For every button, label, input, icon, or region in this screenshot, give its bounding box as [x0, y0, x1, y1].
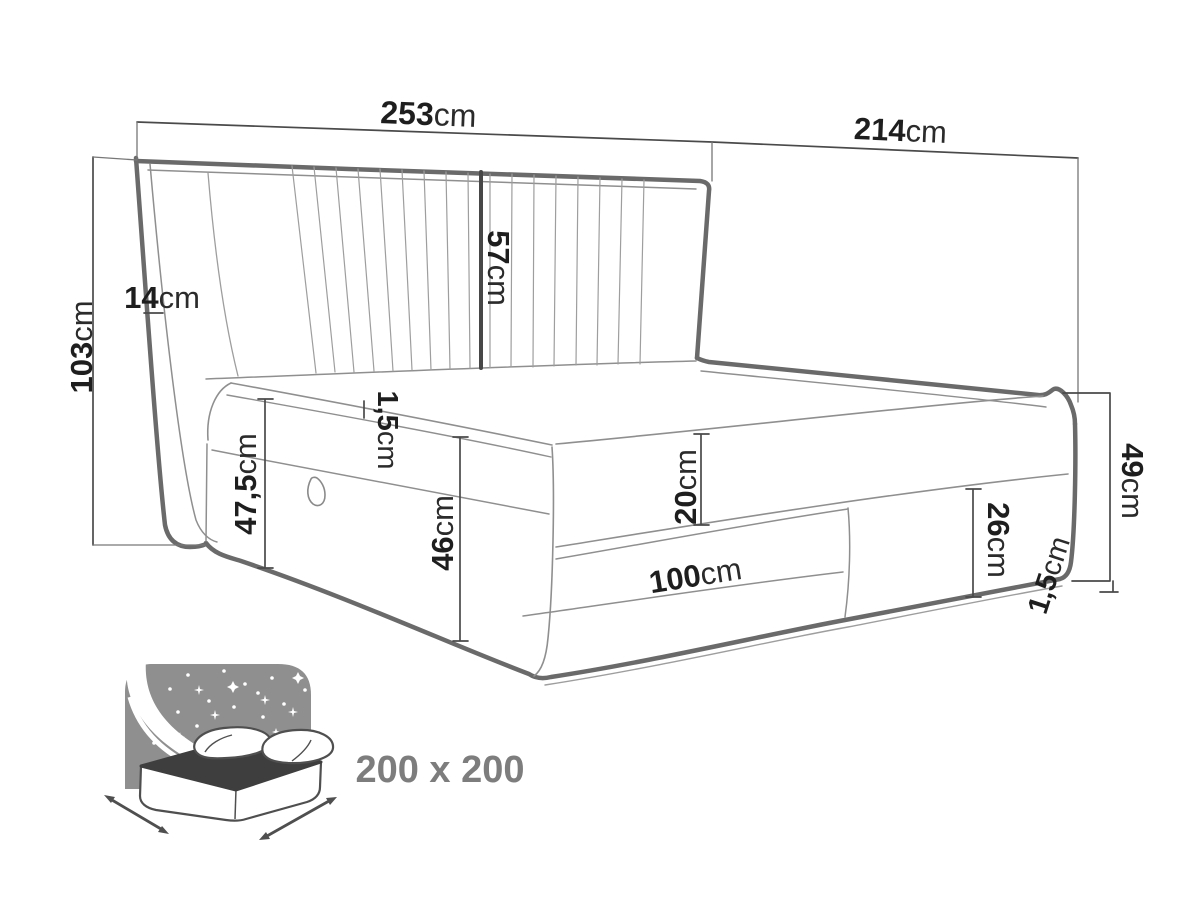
label-foot-panel-height: 26cm — [981, 502, 1016, 578]
label-foot-corner-height: 49cm — [1115, 443, 1150, 519]
mattress-front-right-edge — [556, 396, 1043, 444]
label-drawer-width: 100cm — [647, 551, 744, 600]
label-mattress-seam: 1,5cm — [371, 391, 403, 470]
headboard — [136, 158, 709, 547]
headboard-channel-lines — [292, 166, 644, 373]
base-bottom-right-outline — [206, 424, 1075, 678]
label-total-width: 253cm — [380, 94, 477, 134]
dim-ticks-base-trim — [1100, 581, 1118, 592]
base-bottom-piping — [545, 586, 1062, 685]
bed-size-icon: 200 x 200 — [104, 660, 525, 840]
headboard-wing-outer-edge — [136, 158, 206, 547]
base-front-corner-edge — [534, 447, 553, 676]
mattress — [208, 358, 1075, 547]
label-box-height: 46cm — [425, 495, 460, 571]
drawer-side-edge — [845, 508, 850, 617]
mattress-corner-arc — [208, 383, 231, 440]
headboard-panel-left-boundary — [208, 173, 238, 376]
bed-dimension-drawing: 253cm 214cm 103cm 14cm 57cm 1,5cm 47,5cm… — [0, 0, 1200, 900]
headboard-top-right-edge — [136, 161, 709, 358]
dim-ext-lines-top — [137, 122, 1078, 402]
mattress-back-right-edge — [697, 358, 1075, 424]
storage-base — [206, 424, 1075, 685]
label-side-height: 47,5cm — [228, 433, 263, 535]
base-left-end-edge — [206, 444, 207, 541]
label-headboard-height: 103cm — [64, 300, 99, 393]
label-headboard-panel: 57cm — [481, 230, 516, 306]
headboard-bottom-line — [206, 361, 696, 379]
storage-handle — [308, 477, 325, 505]
dim-line-foot-panel — [966, 489, 981, 597]
product-dimension-diagram: 253cm 214cm 103cm 14cm 57cm 1,5cm 47,5cm… — [0, 0, 1200, 900]
size-badge-label: 200 x 200 — [355, 749, 524, 791]
icon-bed-corner-seam — [235, 789, 236, 819]
label-total-depth: 214cm — [853, 111, 947, 150]
label-mattress-height: 20cm — [668, 449, 703, 525]
label-wing-thickness: 14cm — [124, 280, 200, 315]
